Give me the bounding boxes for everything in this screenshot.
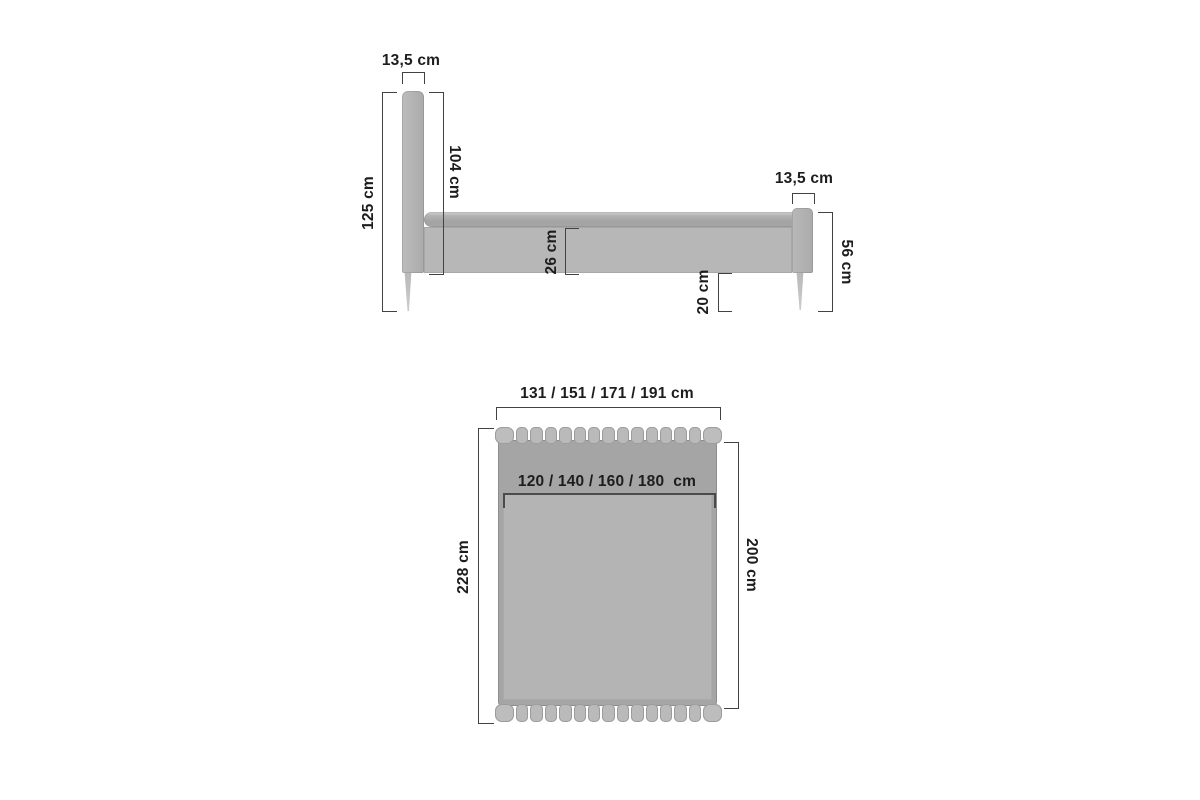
upholstery-channel-segment <box>588 704 600 722</box>
upholstery-channel-segment <box>646 427 658 444</box>
upholstery-channel-segment <box>660 704 672 722</box>
dim-bracket-outer-width <box>496 407 721 420</box>
upholstery-channel-segment <box>574 427 586 444</box>
upholstery-channel-segment <box>674 427 686 444</box>
dim-bracket-headboard-height <box>429 92 444 275</box>
dim-label-headboard-height: 104 cm <box>445 145 463 199</box>
dim-bracket-frame-height <box>565 228 579 275</box>
technical-drawing-canvas: 13,5 cm 125 cm 104 cm 26 cm 20 cm 13,5 c… <box>0 0 1200 800</box>
upholstery-channel-segment <box>631 704 643 722</box>
dim-label-footboard-height: 56 cm <box>837 240 855 285</box>
mattress-top-view <box>503 493 712 700</box>
dim-bracket-total-height <box>382 92 397 312</box>
dim-bracket-headboard-thickness <box>402 72 425 84</box>
upholstery-channel-segment <box>674 704 686 722</box>
upholstery-channel-segment <box>646 704 658 722</box>
dim-label-headboard-thickness: 13,5 cm <box>382 52 440 70</box>
upholstery-channel-segment <box>495 427 514 444</box>
side-view: 13,5 cm 125 cm 104 cm 26 cm 20 cm 13,5 c… <box>0 0 1200 340</box>
upholstery-channel-segment <box>602 427 614 444</box>
upholstery-channel-segment <box>495 704 514 722</box>
upholstery-channel-segment <box>530 427 542 444</box>
dim-bracket-mattress-width <box>503 493 716 508</box>
dim-bracket-footboard-thickness <box>792 193 815 204</box>
dim-bracket-footboard-height <box>818 212 833 312</box>
mattress-edge-profile <box>424 212 794 227</box>
upholstery-channel-segment <box>703 427 722 444</box>
upholstery-channel-segment <box>689 704 701 722</box>
upholstery-channel-segment <box>516 704 528 722</box>
dim-label-mattress-width: 120 / 140 / 160 / 180 cm <box>518 473 696 491</box>
dim-label-mattress-length: 200 cm <box>742 538 760 592</box>
upholstery-channel-segment <box>617 427 629 444</box>
upholstery-channel-segment <box>559 704 571 722</box>
dim-bracket-outer-length <box>478 428 494 724</box>
dim-label-total-height: 125 cm <box>360 176 378 230</box>
frame-rail-profile <box>424 227 792 273</box>
upholstery-channel-segment <box>588 427 600 444</box>
dim-label-outer-width: 131 / 151 / 171 / 191 cm <box>520 385 694 403</box>
upholstery-channel-segment <box>631 427 643 444</box>
upholstery-channel-segment <box>545 427 557 444</box>
dim-label-frame-height: 26 cm <box>543 230 561 275</box>
upholstery-channel-segment <box>689 427 701 444</box>
dim-bracket-floor-clearance <box>718 273 732 312</box>
dim-label-floor-clearance: 20 cm <box>695 270 713 315</box>
upholstery-channel-segment <box>530 704 542 722</box>
footboard-side-profile <box>792 208 813 273</box>
headboard-leg <box>404 273 412 311</box>
upholstery-channel-segment <box>703 704 722 722</box>
upholstery-channel-segment <box>545 704 557 722</box>
footboard-upholstery-channels <box>495 704 722 722</box>
upholstery-channel-segment <box>516 427 528 444</box>
upholstery-channel-segment <box>602 704 614 722</box>
dim-label-footboard-thickness: 13,5 cm <box>775 170 833 188</box>
upholstery-channel-segment <box>660 427 672 444</box>
upholstery-channel-segment <box>559 427 571 444</box>
footboard-leg <box>796 273 804 310</box>
dim-label-outer-length: 228 cm <box>455 540 473 594</box>
headboard-side-profile <box>402 91 424 273</box>
upholstery-channel-segment <box>617 704 629 722</box>
dim-bracket-mattress-length <box>724 442 739 709</box>
headboard-upholstery-channels <box>495 427 722 444</box>
upholstery-channel-segment <box>574 704 586 722</box>
